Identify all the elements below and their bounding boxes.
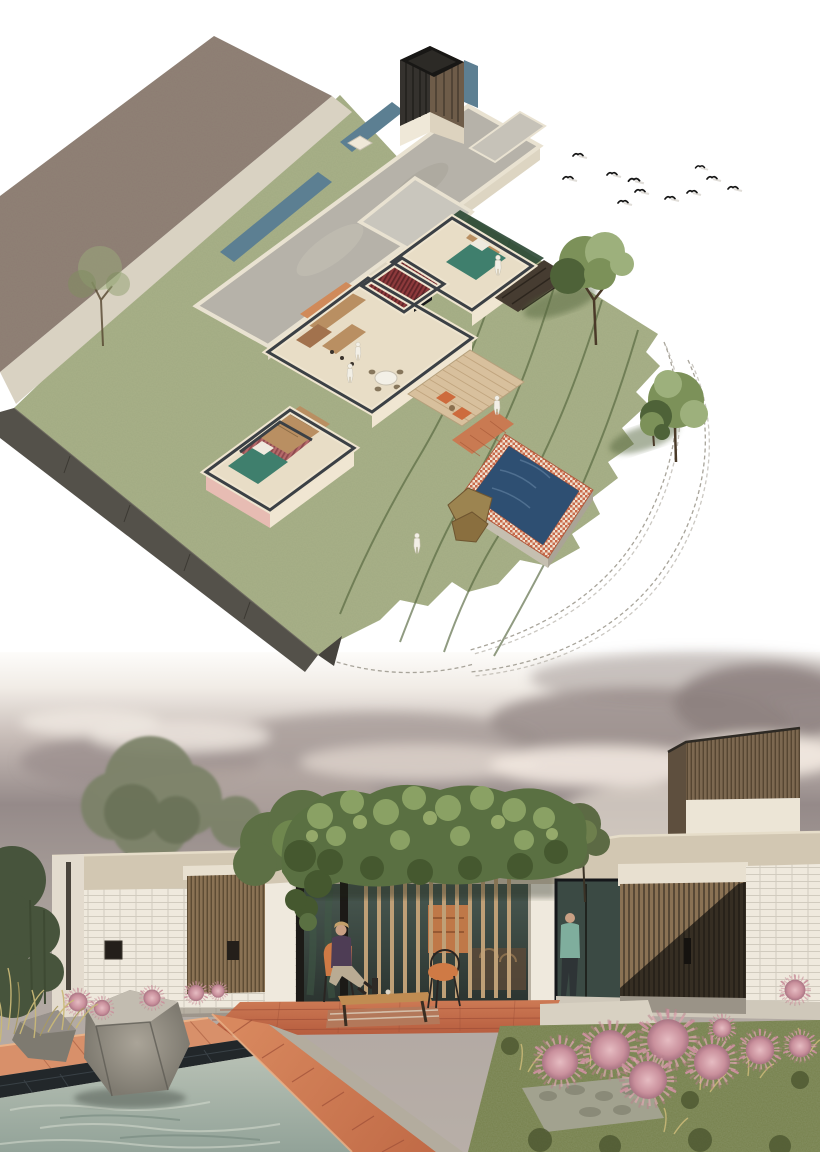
exterior-render [0,652,820,1160]
presentation-board [0,0,820,1160]
board-canvas [0,0,820,1160]
window-box [227,941,239,960]
window-box [105,941,122,959]
right-glass-door [556,880,622,1002]
thermos [372,978,378,994]
isometric-site-plan [0,36,742,676]
render-tower [668,728,800,842]
door-handle [684,938,691,964]
downspout [66,862,71,990]
interior-cabinet [428,905,468,953]
bottom-margin [0,1152,820,1160]
birds-flock [563,154,742,205]
